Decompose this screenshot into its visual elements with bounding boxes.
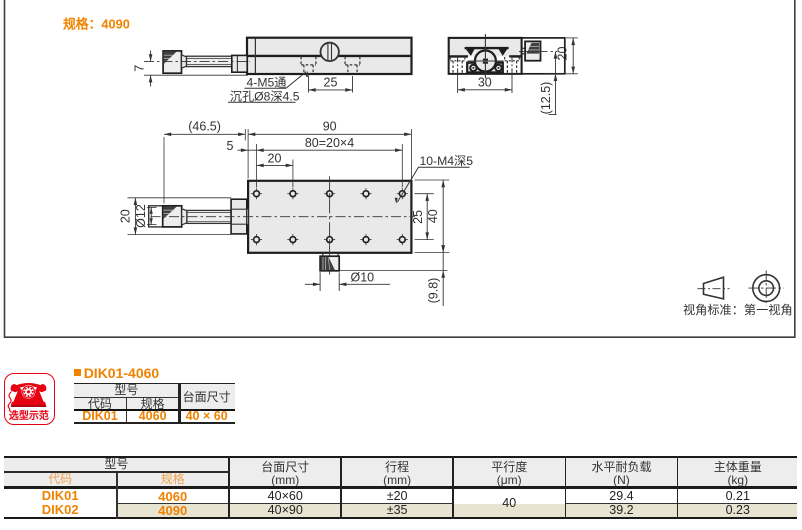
svg-text:(9.8): (9.8)	[427, 278, 441, 304]
svg-text:20: 20	[119, 209, 133, 223]
svg-text:40: 40	[426, 209, 440, 223]
svg-text:5: 5	[227, 139, 234, 153]
svg-text:视角标准：第一视角: 视角标准：第一视角	[683, 302, 793, 317]
svg-text:Ø10: Ø10	[351, 271, 375, 285]
svg-text:规格：4090: 规格：4090	[63, 17, 130, 32]
svg-text:20: 20	[556, 47, 570, 61]
svg-text:沉孔Ø8深4.5: 沉孔Ø8深4.5	[230, 89, 300, 103]
svg-text:90: 90	[323, 120, 337, 134]
svg-text:25: 25	[324, 75, 338, 89]
svg-text:(46.5): (46.5)	[188, 120, 221, 134]
svg-text:80=20×4: 80=20×4	[305, 136, 354, 150]
svg-text:Ø12: Ø12	[134, 204, 148, 228]
svg-text:7: 7	[133, 65, 147, 72]
svg-text:(12.5): (12.5)	[539, 82, 553, 115]
svg-text:10-M4深5: 10-M4深5	[420, 154, 474, 168]
svg-text:25: 25	[411, 210, 425, 224]
svg-text:20: 20	[268, 151, 282, 165]
svg-text:4-M5通: 4-M5通	[247, 75, 287, 89]
svg-text:30: 30	[478, 75, 492, 89]
